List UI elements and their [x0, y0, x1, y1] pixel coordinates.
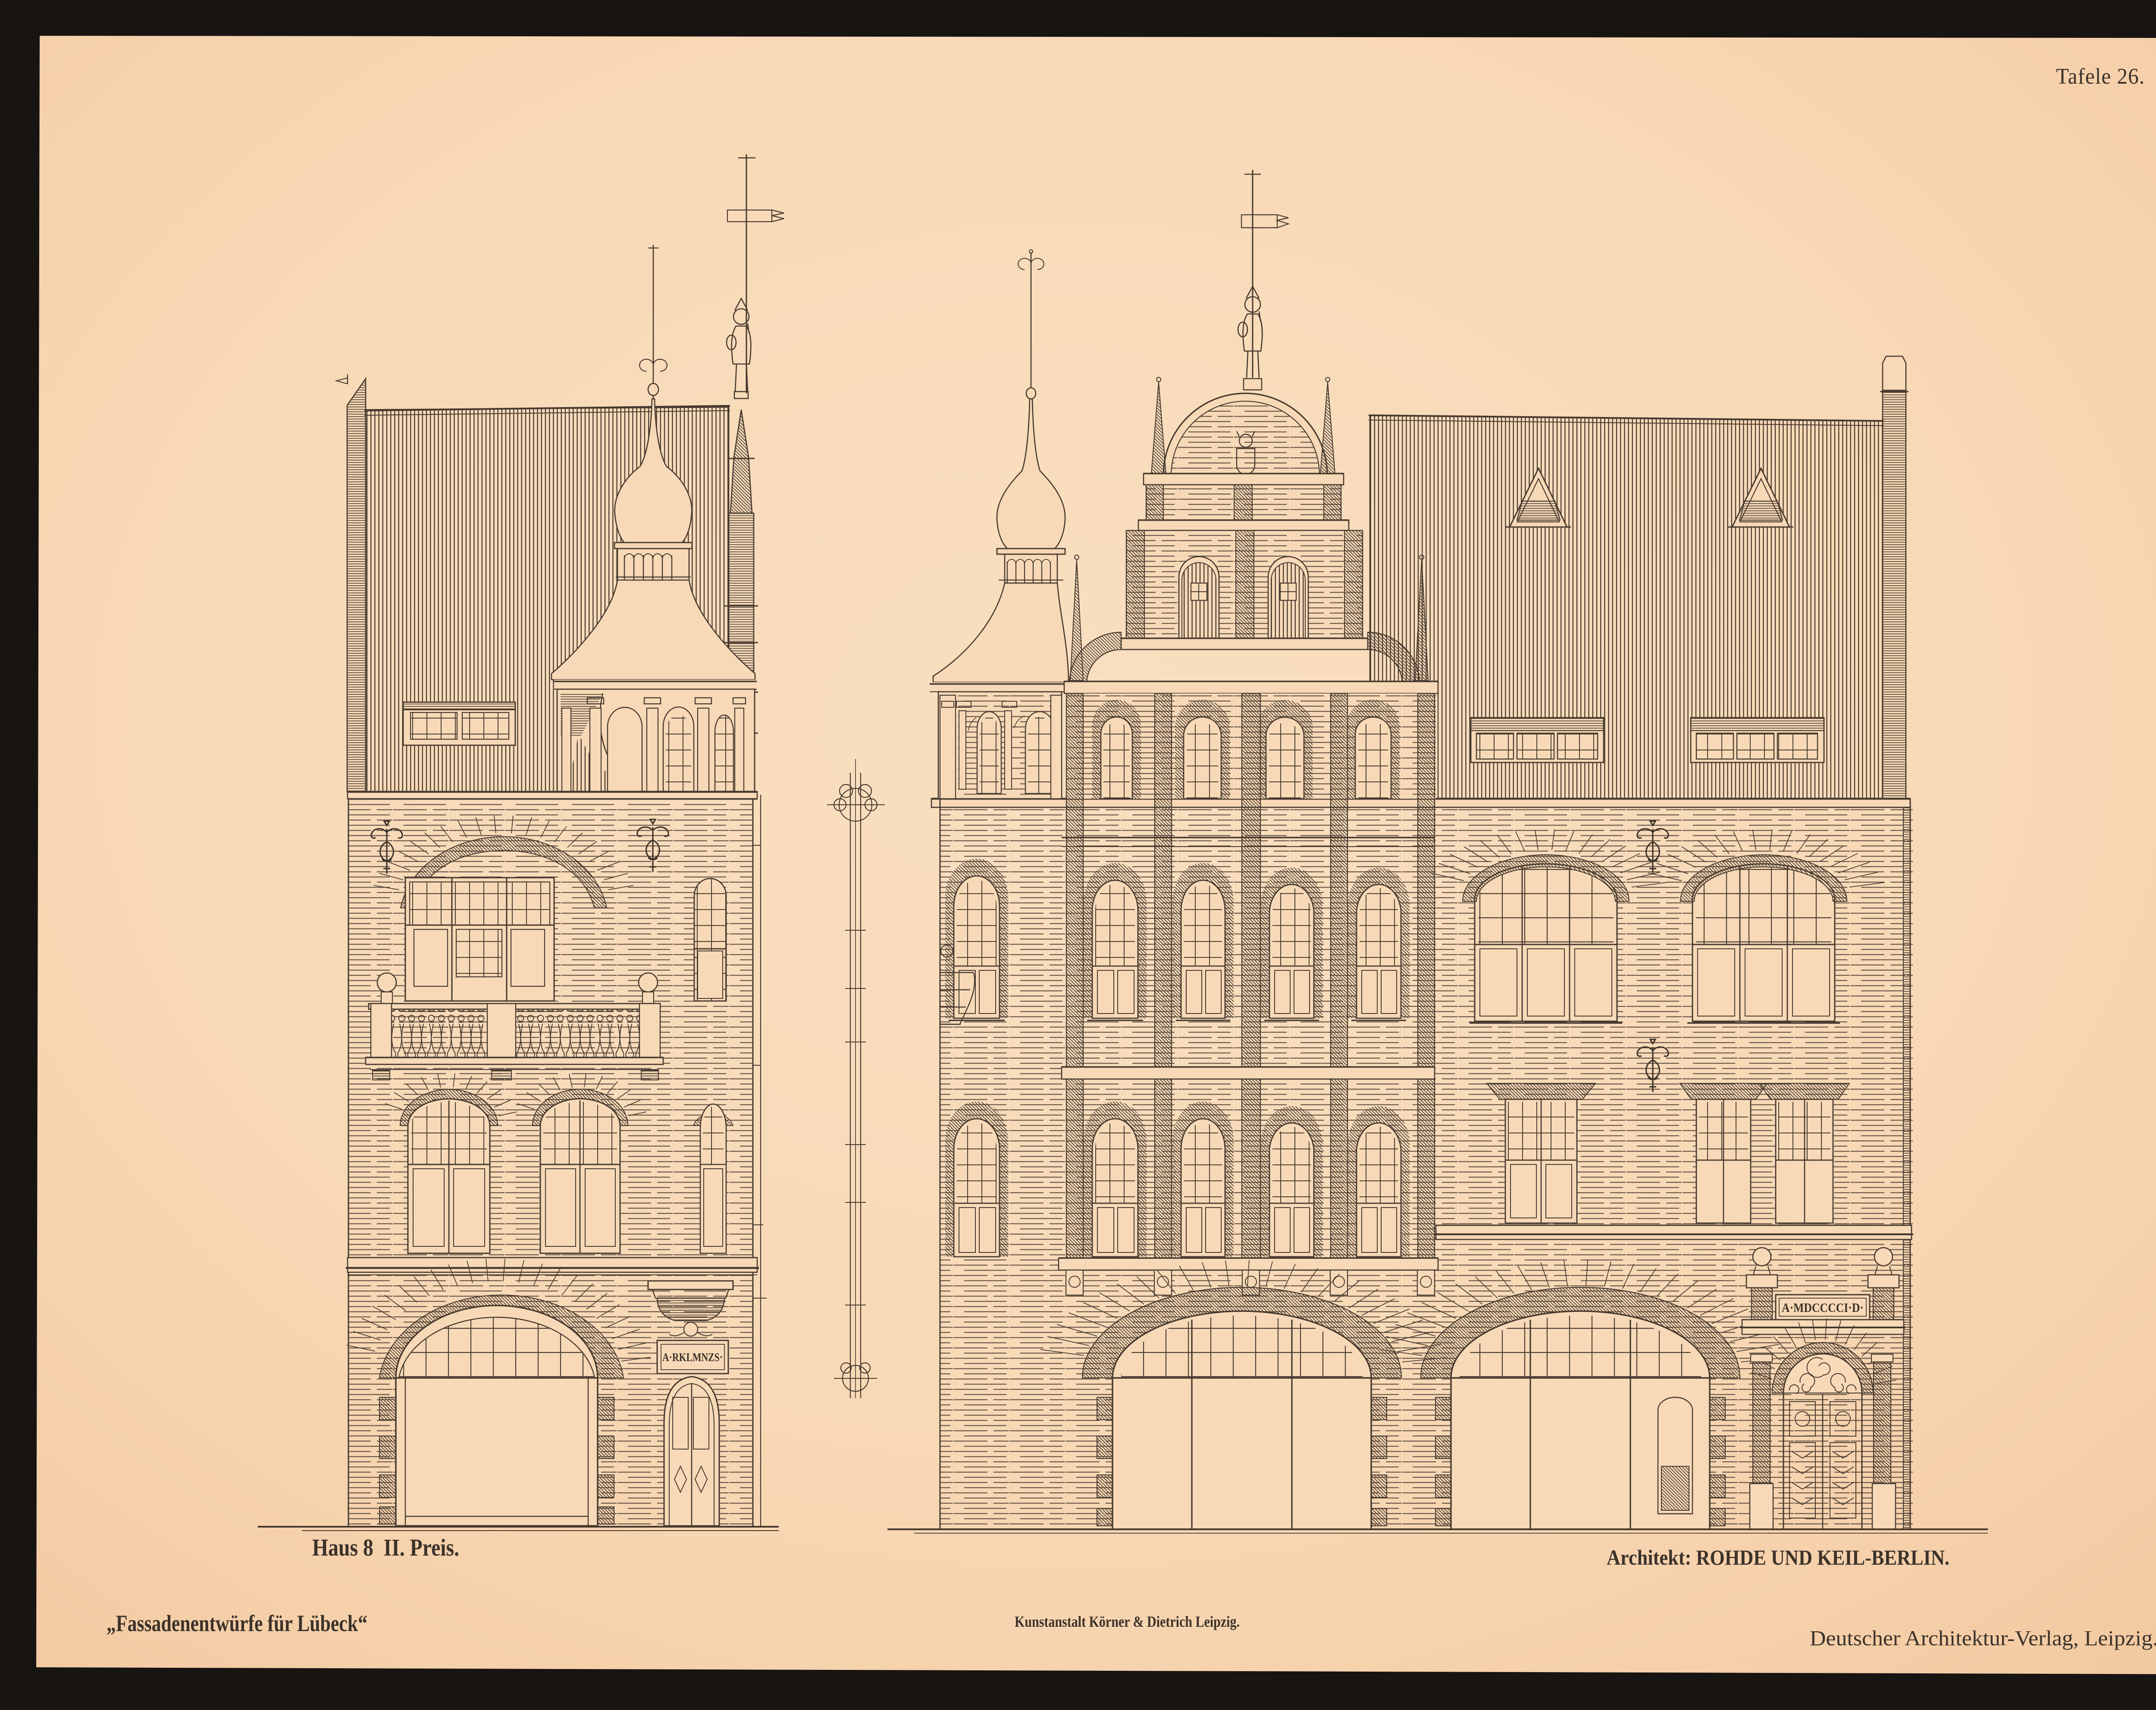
- svg-text:Tafele 26.: Tafele 26.: [2056, 64, 2145, 89]
- svg-text:A·RKLMNZS·: A·RKLMNZS·: [662, 1351, 723, 1364]
- svg-text:Deutscher Architektur-Verlag,: Deutscher Architektur-Verlag, Leipzig.: [1810, 1626, 2156, 1650]
- svg-text:Kunstanstalt Körner & Dietrich: Kunstanstalt Körner & Dietrich Leipzig.: [1015, 1613, 1240, 1630]
- svg-text:Architekt: ROHDE UND KEIL-BERL: Architekt: ROHDE UND KEIL-BERLIN.: [1607, 1545, 1949, 1569]
- svg-text:A·MDCCCCI·D·: A·MDCCCCI·D·: [1782, 1301, 1864, 1315]
- svg-text:„Fassadenentwürfe für Lübeck“: „Fassadenentwürfe für Lübeck“: [107, 1610, 367, 1636]
- svg-text:Haus 8 II. Preis.: Haus 8 II. Preis.: [312, 1534, 459, 1561]
